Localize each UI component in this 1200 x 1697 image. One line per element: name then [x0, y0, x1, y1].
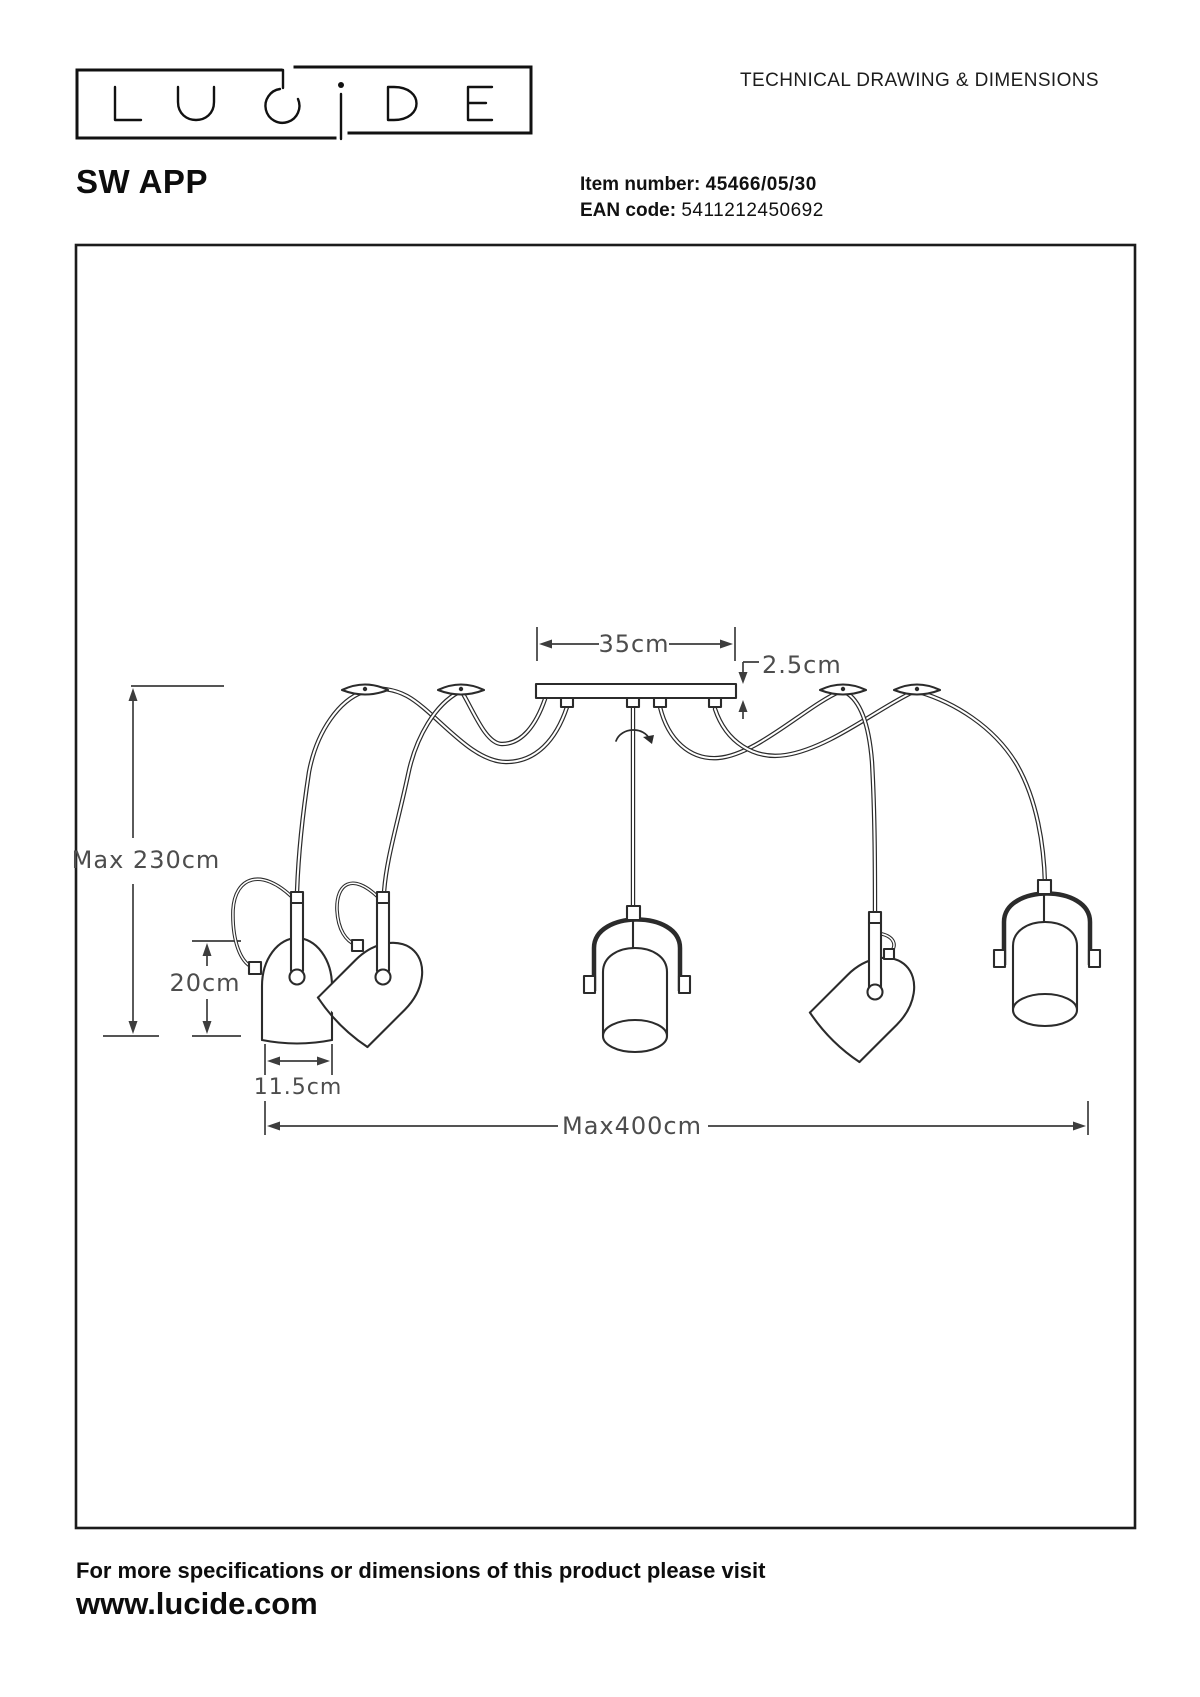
spot-lamp-5	[994, 880, 1100, 1026]
pendant-cables	[297, 689, 1045, 915]
lamp5-bracket-tab-right	[1089, 950, 1100, 967]
logo-letter-c	[265, 89, 299, 123]
logo-box-top-right	[295, 67, 531, 133]
dim-label-35cm: 35cm	[598, 630, 669, 658]
cable-hook-3	[820, 685, 866, 695]
lamp5-bracket-tab-left	[994, 950, 1005, 967]
dim-label-11-5cm: 11.5cm	[254, 1075, 343, 1100]
lamp2-cable-connector	[377, 892, 389, 903]
cable-hook-2	[438, 685, 484, 695]
spot-lamp-2	[315, 883, 438, 1049]
lamp4-bulb	[868, 985, 883, 1000]
drawing-frame	[76, 245, 1135, 1528]
plate-stub-1	[561, 698, 573, 707]
lamp3-bracket-tab-left	[584, 976, 595, 993]
logo-letter-u	[178, 87, 214, 120]
technical-drawing-page: TECHNICAL DRAWING & DIMENSIONS SW APP It…	[0, 0, 1200, 1697]
lamp5-shade-bottom	[1013, 994, 1077, 1026]
dim-label-max-230cm: Max 230cm	[72, 846, 221, 874]
dimension-lamp-height: 20cm	[169, 941, 241, 1036]
dimension-max-width: Max400cm	[265, 1101, 1088, 1140]
dimension-plate-width: 35cm	[537, 627, 735, 661]
plate-stub-4	[709, 698, 721, 707]
logo-letter-e	[468, 87, 492, 120]
logo-letter-d	[388, 87, 417, 120]
lamp5-cable-connector	[1038, 880, 1051, 894]
lamp4-cord-connector	[884, 949, 894, 959]
lamp1-cord-connector	[249, 962, 261, 974]
spot-lamp-3	[584, 906, 690, 1052]
lucide-logo	[77, 67, 531, 139]
lamp1-bulb	[290, 970, 305, 985]
ceiling-plate-body	[536, 684, 736, 698]
plate-stub-2	[627, 698, 639, 707]
cable-hook-4	[894, 685, 940, 695]
drawing-canvas: 35cm 2.5cm Max 230cm 20cm	[0, 0, 1200, 1697]
lamp1-cable-connector	[291, 892, 303, 903]
ceiling-plate	[536, 684, 736, 707]
dim-label-20cm: 20cm	[169, 969, 240, 997]
spot-lamp-1	[233, 879, 332, 1043]
cable-hook-1	[342, 685, 388, 695]
dim-label-2-5cm: 2.5cm	[762, 651, 842, 679]
spot-lamp-4	[807, 912, 930, 1065]
lamp4-cable-connector	[869, 912, 881, 923]
dimension-lamp-width: 11.5cm	[254, 1044, 343, 1100]
lamp2-bulb	[376, 970, 391, 985]
plate-stub-3	[654, 698, 666, 707]
dimension-plate-thickness: 2.5cm	[739, 651, 842, 719]
lamp3-shade-bottom	[603, 1020, 667, 1052]
lamp3-cable-connector	[627, 906, 640, 920]
lamp3-bracket-tab-right	[679, 976, 690, 993]
dim-label-max-400cm: Max400cm	[562, 1112, 702, 1140]
lamp2-cord-connector	[352, 940, 363, 951]
logo-letter-i-dot	[338, 82, 344, 88]
logo-letter-l	[115, 87, 141, 120]
